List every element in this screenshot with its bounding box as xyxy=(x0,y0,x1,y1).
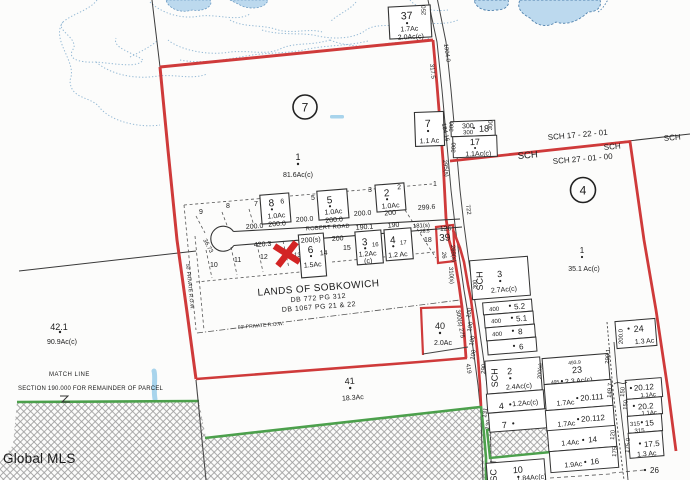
svg-text:1: 1 xyxy=(433,181,437,188)
svg-text:190: 190 xyxy=(388,222,400,230)
svg-text:300: 300 xyxy=(449,121,456,132)
svg-text:1.0Ac: 1.0Ac xyxy=(267,212,286,220)
svg-text:7: 7 xyxy=(501,420,507,430)
svg-text:1.9Ac: 1.9Ac xyxy=(564,461,583,469)
svg-text:400: 400 xyxy=(492,332,503,339)
svg-text:299.6: 299.6 xyxy=(418,204,436,212)
svg-text:20.111: 20.111 xyxy=(580,392,604,403)
svg-text:18: 18 xyxy=(424,237,432,244)
svg-text:420.3: 420.3 xyxy=(254,241,272,249)
svg-text:6: 6 xyxy=(280,198,285,205)
svg-text:1.5Ac: 1.5Ac xyxy=(304,261,323,269)
svg-text:9: 9 xyxy=(199,209,203,216)
svg-text:26: 26 xyxy=(440,252,446,260)
svg-text:42.1: 42.1 xyxy=(50,322,68,332)
svg-text:15: 15 xyxy=(343,245,351,252)
svg-text:200.0: 200.0 xyxy=(619,328,625,344)
svg-text:10: 10 xyxy=(512,464,523,475)
svg-text:2.0Ac: 2.0Ac xyxy=(434,340,452,347)
svg-text:26: 26 xyxy=(650,466,659,475)
svg-text:15: 15 xyxy=(645,418,655,428)
svg-text:SCH: SCH xyxy=(663,133,681,143)
svg-text:24: 24 xyxy=(633,323,644,334)
svg-text:3: 3 xyxy=(497,269,503,279)
svg-text:1.4Ac: 1.4Ac xyxy=(561,439,580,447)
svg-text:4: 4 xyxy=(580,184,587,198)
svg-text:39: 39 xyxy=(439,232,451,244)
svg-text:200: 200 xyxy=(384,210,396,218)
svg-text:190.1: 190.1 xyxy=(356,224,374,232)
svg-text:16: 16 xyxy=(590,457,600,467)
svg-text:41: 41 xyxy=(344,376,355,387)
svg-text:5: 5 xyxy=(311,195,315,202)
svg-text:1.1 Ac: 1.1 Ac xyxy=(420,138,440,146)
svg-text:400: 400 xyxy=(489,307,500,314)
svg-text:2: 2 xyxy=(507,366,513,376)
svg-text:10: 10 xyxy=(210,262,218,269)
svg-text:315: 315 xyxy=(630,421,641,428)
svg-text:17: 17 xyxy=(400,240,408,247)
svg-text:SCH: SCH xyxy=(603,142,621,152)
svg-text:1.7Ac: 1.7Ac xyxy=(556,399,575,407)
svg-text:300: 300 xyxy=(488,119,495,130)
svg-text:120: 120 xyxy=(610,429,617,440)
svg-text:12: 12 xyxy=(260,254,268,261)
svg-text:250: 250 xyxy=(421,4,427,15)
svg-text:Global MLS: Global MLS xyxy=(3,451,76,466)
svg-text:200.0: 200.0 xyxy=(354,210,372,218)
svg-text:200.0: 200.0 xyxy=(268,220,286,228)
svg-text:SECTION 190.000 FOR REMAINDER: SECTION 190.000 FOR REMAINDER OF PARCEL xyxy=(18,386,164,392)
svg-text:200: 200 xyxy=(332,235,344,243)
svg-text:17: 17 xyxy=(470,137,480,147)
svg-text:269(s): 269(s) xyxy=(449,245,456,262)
svg-text:SC: SC xyxy=(488,468,498,480)
svg-text:200.0: 200.0 xyxy=(246,223,264,231)
svg-text:8: 8 xyxy=(226,203,230,210)
svg-text:14: 14 xyxy=(588,435,598,445)
svg-text:11: 11 xyxy=(234,257,241,264)
svg-text:150: 150 xyxy=(620,386,627,397)
svg-text:20.12: 20.12 xyxy=(634,382,655,393)
svg-text:81.6Ac(c): 81.6Ac(c) xyxy=(283,172,313,179)
svg-text:150: 150 xyxy=(623,399,630,410)
svg-text:16: 16 xyxy=(372,242,380,249)
svg-text:290.1: 290.1 xyxy=(605,348,612,364)
svg-text:200.0: 200.0 xyxy=(296,216,314,224)
svg-text:5.1: 5.1 xyxy=(516,314,528,324)
svg-text:2: 2 xyxy=(397,184,402,191)
svg-text:300: 300 xyxy=(451,142,458,153)
svg-text:1.1Ac(c): 1.1Ac(c) xyxy=(465,150,491,158)
svg-text:7: 7 xyxy=(425,118,431,130)
svg-text:14: 14 xyxy=(320,250,328,258)
svg-text:1.7Ac: 1.7Ac xyxy=(557,420,576,428)
svg-text:17.5: 17.5 xyxy=(644,439,661,449)
svg-text:90.9Ac(c): 90.9Ac(c) xyxy=(47,339,77,346)
svg-text:149.7: 149.7 xyxy=(607,382,614,398)
svg-text:37: 37 xyxy=(401,10,413,23)
svg-text:26.5: 26.5 xyxy=(420,228,430,235)
svg-text:310(s): 310(s) xyxy=(447,267,454,284)
svg-text:1: 1 xyxy=(295,152,300,162)
svg-text:7: 7 xyxy=(302,101,309,115)
svg-text:35.1 Ac(c): 35.1 Ac(c) xyxy=(568,266,600,273)
svg-text:MATCH LINE: MATCH LINE xyxy=(49,372,90,378)
svg-text:175: 175 xyxy=(612,446,619,457)
svg-text:2.0Ac(c): 2.0Ac(c) xyxy=(398,33,424,41)
svg-text:1.7Ac: 1.7Ac xyxy=(400,26,419,34)
svg-text:(c): (c) xyxy=(364,258,373,266)
svg-text:SCH: SCH xyxy=(517,149,538,162)
svg-text:1: 1 xyxy=(580,246,585,255)
svg-text:300: 300 xyxy=(473,280,479,289)
svg-text:7: 7 xyxy=(254,201,258,208)
svg-text:175.0: 175.0 xyxy=(625,437,632,453)
svg-text:300: 300 xyxy=(463,130,474,136)
svg-text:200.0: 200.0 xyxy=(325,216,343,224)
svg-text:5.2: 5.2 xyxy=(514,302,526,312)
svg-text:23: 23 xyxy=(572,365,583,376)
svg-text:20.112: 20.112 xyxy=(581,413,606,424)
svg-text:1.0Ac: 1.0Ac xyxy=(324,208,343,216)
svg-text:4: 4 xyxy=(498,401,504,411)
svg-text:3: 3 xyxy=(368,187,372,194)
svg-text:SCH: SCH xyxy=(489,368,499,387)
svg-text:400: 400 xyxy=(491,319,502,326)
svg-text:40: 40 xyxy=(435,321,445,331)
